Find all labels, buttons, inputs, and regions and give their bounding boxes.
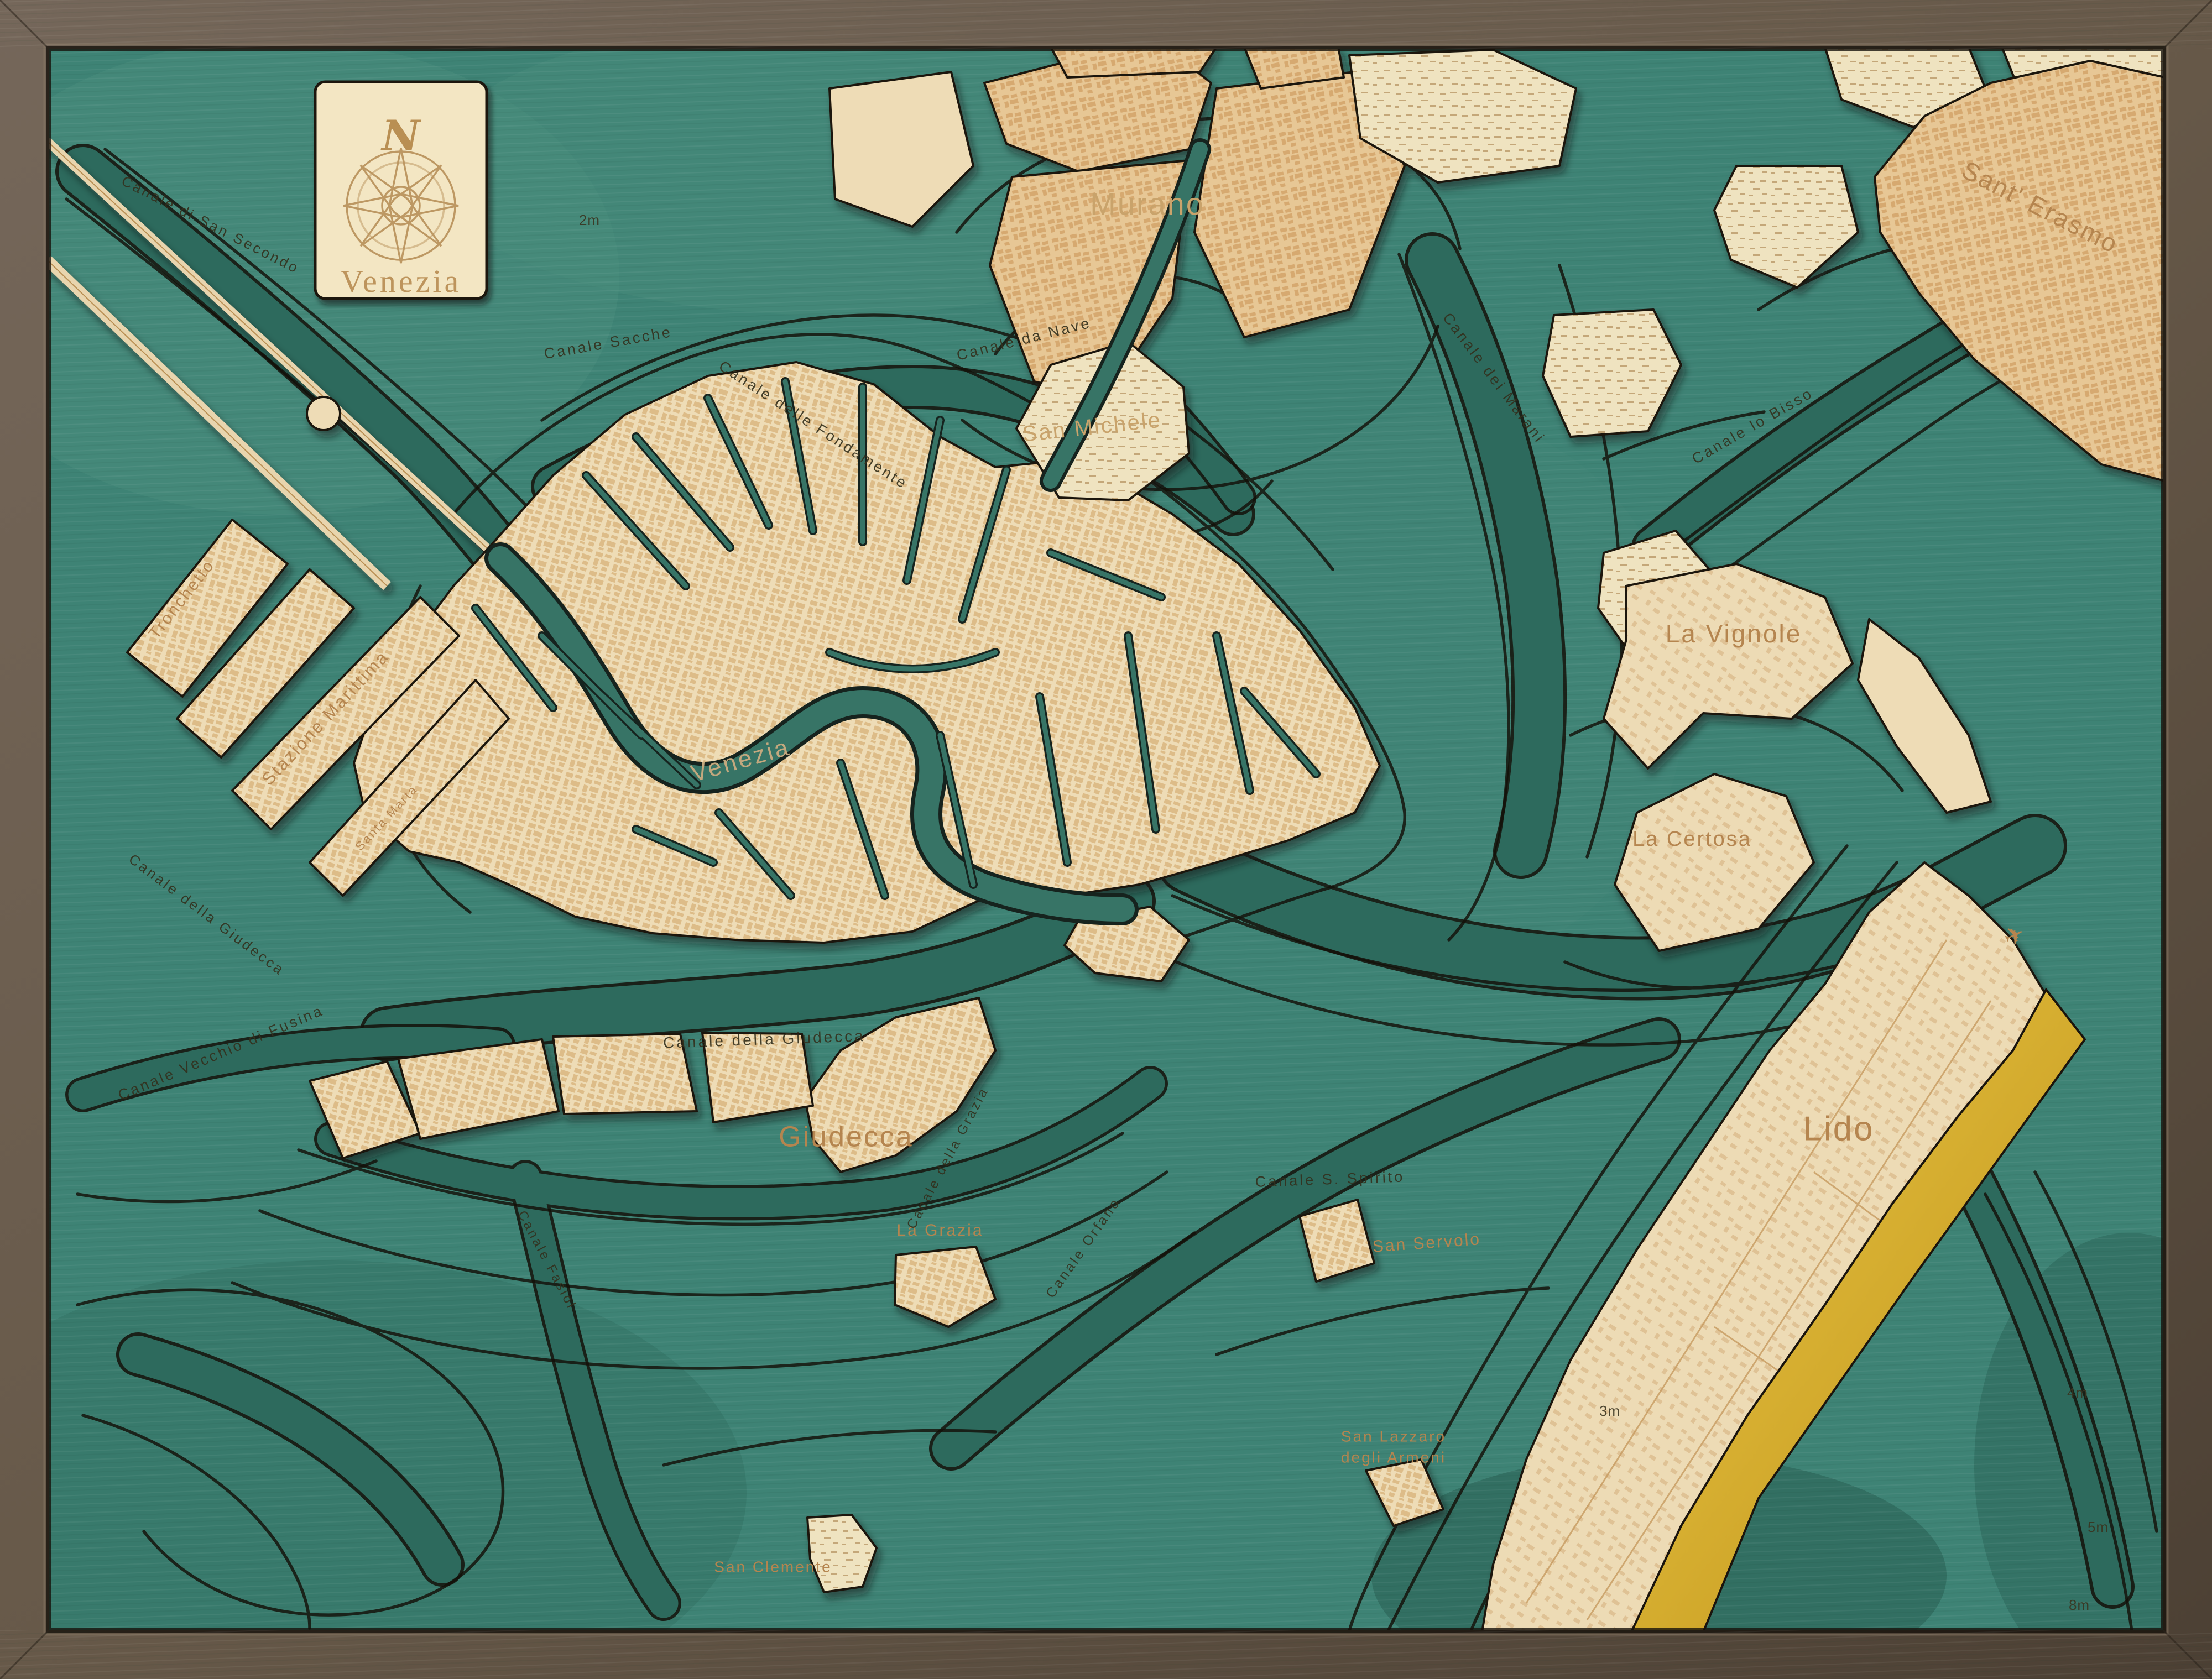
title-card: N Venezia	[315, 82, 487, 299]
islet-san-secondo	[307, 397, 340, 430]
label-san-lazzaro-line1: San Lazzaro	[1341, 1427, 1446, 1445]
label-murano: Murano	[1090, 186, 1205, 221]
label-lido: Lido	[1803, 1110, 1874, 1148]
depth-marker-8m: 8m	[2069, 1597, 2090, 1613]
label-giudecca: Giudecca	[779, 1121, 914, 1153]
label-la-certosa: La Certosa	[1632, 828, 1752, 851]
depth-marker-4m: 4m	[2067, 1384, 2088, 1401]
depth-marker-5m: 5m	[2088, 1519, 2109, 1535]
label-la-vignole: La Vignole	[1666, 619, 1802, 648]
framed-wood-lagoon-map: Murano San Michele Sant' Erasmo La Vigno…	[0, 0, 2212, 1679]
label-san-clemente: San Clemente	[714, 1558, 832, 1575]
north-label: N	[380, 111, 421, 160]
depth-marker-3m: 3m	[1599, 1403, 1620, 1419]
label-san-lazzaro-line2: degli Armeni	[1341, 1448, 1446, 1466]
map-title: Venezia	[341, 263, 462, 299]
depth-marker-2m: 2m	[579, 212, 600, 228]
